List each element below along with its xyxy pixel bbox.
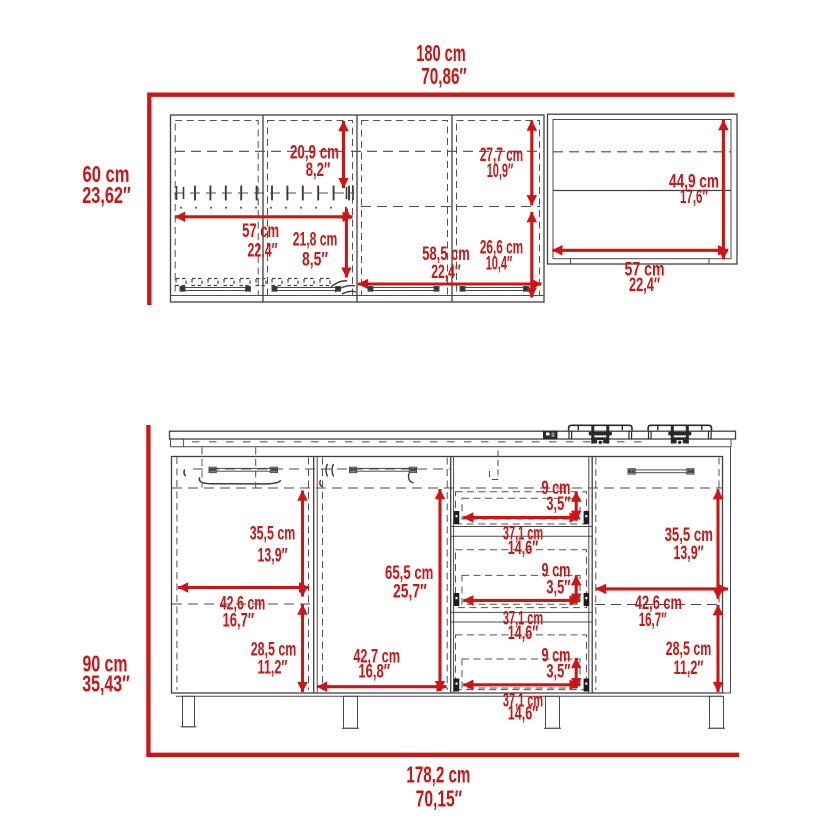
svg-text:35,5 cm: 35,5 cm [250, 524, 296, 545]
svg-text:25,7″: 25,7″ [393, 582, 427, 603]
svg-text:16,8″: 16,8″ [358, 662, 390, 683]
svg-text:14,6″: 14,6″ [508, 623, 539, 644]
svg-text:70,86″: 70,86″ [421, 63, 467, 89]
svg-text:10,4″: 10,4″ [486, 254, 513, 275]
svg-text:13,9″: 13,9″ [674, 543, 704, 564]
svg-text:17,6″: 17,6″ [680, 187, 708, 208]
svg-text:21,8 cm: 21,8 cm [293, 230, 338, 251]
svg-text:8,5″: 8,5″ [302, 250, 328, 271]
svg-text:8,2″: 8,2″ [306, 160, 331, 181]
svg-text:16,7″: 16,7″ [223, 611, 255, 632]
svg-text:22,4″: 22,4″ [431, 262, 461, 283]
svg-text:14,6″: 14,6″ [508, 538, 539, 559]
svg-text:22,4″: 22,4″ [629, 275, 660, 296]
svg-text:10,9″: 10,9″ [487, 161, 514, 182]
svg-text:57 cm: 57 cm [242, 221, 279, 242]
svg-text:22,4″: 22,4″ [248, 241, 278, 262]
svg-text:28,5 cm: 28,5 cm [666, 639, 712, 660]
svg-text:16,7″: 16,7″ [639, 610, 667, 631]
svg-text:11,2″: 11,2″ [258, 658, 288, 679]
svg-text:178,2 cm: 178,2 cm [406, 762, 470, 788]
svg-text:35,43″: 35,43″ [82, 671, 130, 697]
svg-text:3,5″: 3,5″ [546, 662, 570, 683]
svg-text:23,62″: 23,62″ [82, 182, 131, 208]
svg-text:14,6″: 14,6″ [508, 704, 539, 725]
svg-text:3,5″: 3,5″ [546, 494, 570, 515]
svg-text:11,2″: 11,2″ [674, 658, 704, 679]
svg-text:3,5″: 3,5″ [546, 578, 570, 599]
svg-text:13,9″: 13,9″ [258, 546, 288, 567]
svg-text:70,15″: 70,15″ [416, 786, 463, 812]
